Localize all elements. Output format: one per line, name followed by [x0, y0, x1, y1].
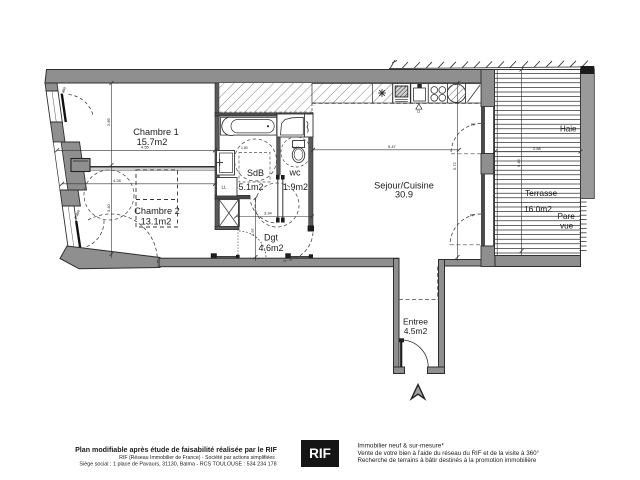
svg-text:3.34: 3.34 [264, 211, 273, 216]
svg-text:Siège social : 1 place de Pava: Siège social : 1 place de Pavaurs, 31130… [79, 462, 276, 468]
svg-text:30.9: 30.9 [395, 190, 413, 200]
svg-text:13.1m2: 13.1m2 [141, 216, 172, 226]
svg-text:RIF (Réseau Immobilier de Fran: RIF (Réseau Immobilier de France) - Soci… [119, 455, 275, 461]
svg-text:5.47: 5.47 [388, 144, 397, 149]
svg-text:Pare: Pare [558, 212, 576, 221]
svg-text:Recherche de terrains à bâtir: Recherche de terrains à bâtir destinés à… [358, 457, 537, 464]
svg-text:Entree: Entree [403, 317, 428, 327]
svg-text:Plan modifiable après étude de: Plan modifiable après étude de faisabili… [75, 446, 278, 454]
svg-text:4.55: 4.55 [141, 145, 150, 150]
svg-text:72: 72 [417, 110, 421, 114]
svg-text:1.97: 1.97 [250, 227, 255, 236]
svg-text:Dgt: Dgt [264, 232, 279, 242]
svg-text:5.1m2: 5.1m2 [238, 182, 263, 192]
svg-text:Haie: Haie [560, 124, 577, 133]
svg-text:2.89: 2.89 [106, 117, 111, 126]
svg-text:wc: wc [289, 168, 301, 178]
svg-text:5.72: 5.72 [452, 161, 457, 170]
svg-text:PF: PF [471, 123, 476, 127]
svg-text:Chambre 1: Chambre 1 [133, 127, 178, 137]
svg-text:1.9m2: 1.9m2 [283, 182, 308, 192]
svg-text:4.5m2: 4.5m2 [404, 326, 428, 336]
svg-text:SdB: SdB [247, 168, 264, 178]
svg-text:vue: vue [560, 222, 574, 231]
svg-text:2.88: 2.88 [533, 146, 542, 151]
svg-text:Terrasse: Terrasse [525, 188, 557, 198]
svg-text:PF: PF [470, 214, 475, 218]
svg-text:Patio: Patio [59, 85, 67, 96]
svg-text:4.28: 4.28 [113, 178, 122, 183]
svg-text:RIF: RIF [309, 446, 331, 461]
svg-text:16.0m2: 16.0m2 [524, 204, 552, 214]
svg-text:5.46: 5.46 [516, 158, 521, 167]
svg-text:4.6m2: 4.6m2 [258, 243, 283, 253]
svg-text:Immobilier neuf & sur-mesure*: Immobilier neuf & sur-mesure* [358, 443, 445, 450]
svg-text:Chambre 2: Chambre 2 [134, 206, 179, 216]
svg-text:1.80: 1.80 [241, 146, 248, 150]
svg-text:3.40: 3.40 [106, 203, 111, 212]
svg-text:LL: LL [221, 185, 227, 190]
svg-text:0.90: 0.90 [293, 146, 300, 150]
